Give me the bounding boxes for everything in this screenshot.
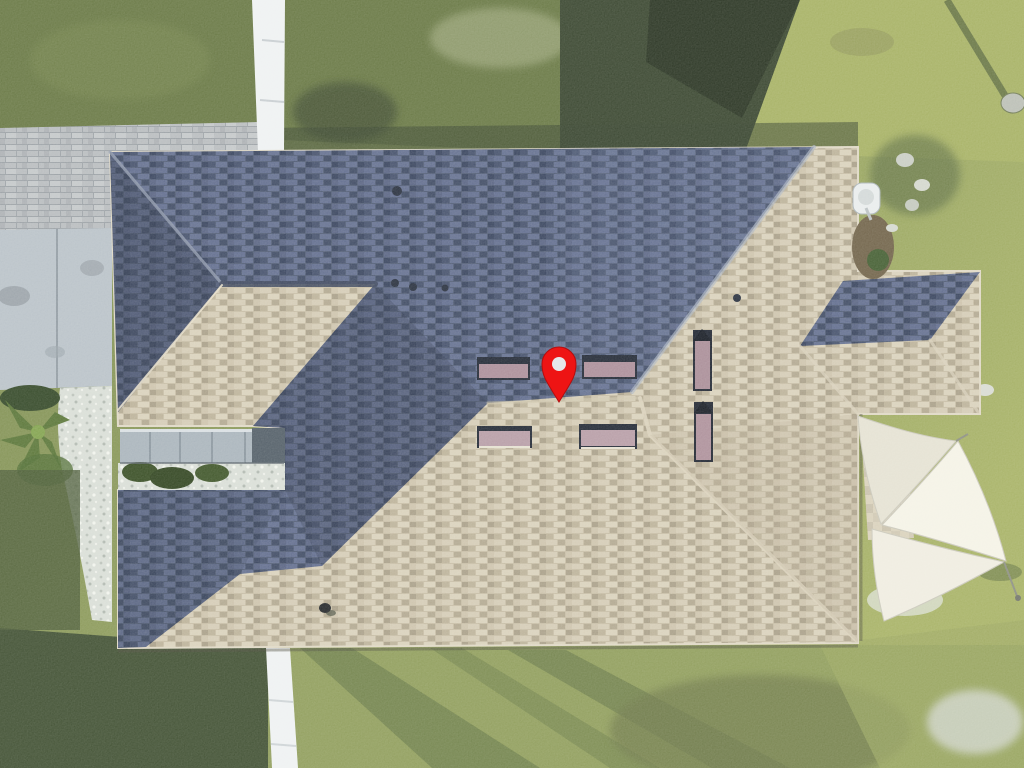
aerial-photo-canvas: [0, 0, 1024, 768]
aerial-photo: [0, 0, 1024, 768]
photo-grain: [0, 0, 1024, 768]
